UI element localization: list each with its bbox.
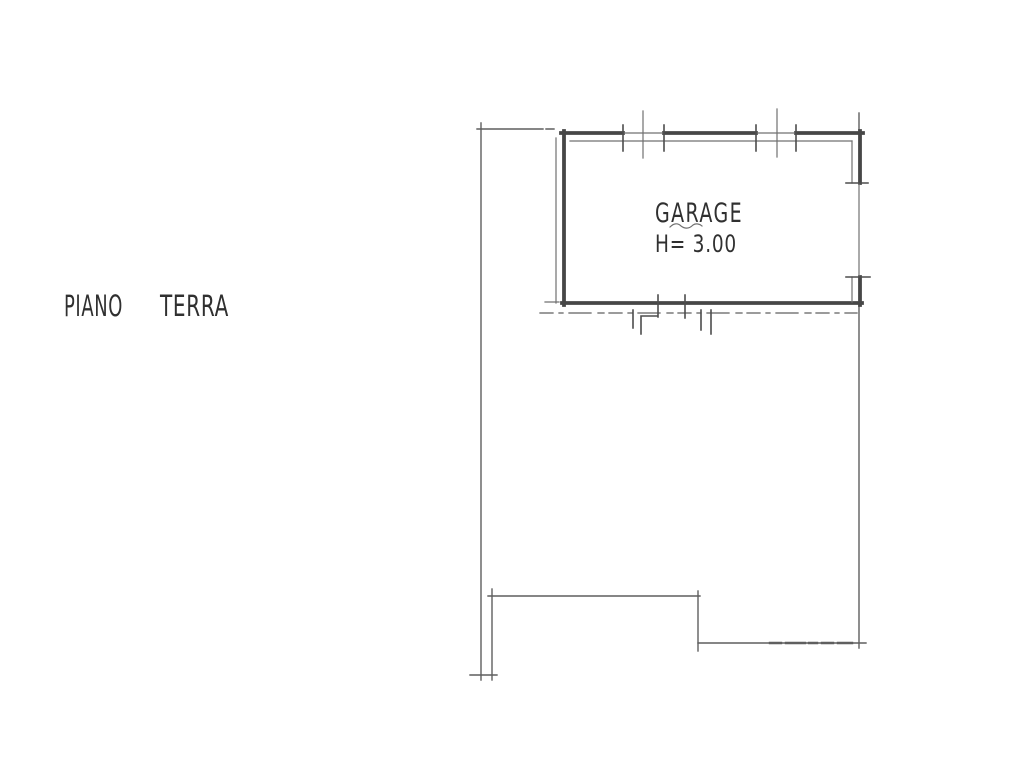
floor-label-word-1: PIANO: [64, 289, 123, 323]
floor-label-word-2: TERRA: [159, 289, 229, 323]
right-opening-ticks: [846, 183, 870, 277]
left-wall-outer-line: [545, 138, 559, 303]
floor-plan-drawing: PIANO TERRA GARAGE H= 3.00: [0, 0, 1024, 768]
window-jamb-ticks: [623, 125, 796, 151]
room-height-label: H= 3.00: [655, 230, 737, 258]
bottom-door-ticks: [658, 295, 685, 318]
floor-plan-page: PIANO TERRA GARAGE H= 3.00: [0, 0, 1024, 768]
